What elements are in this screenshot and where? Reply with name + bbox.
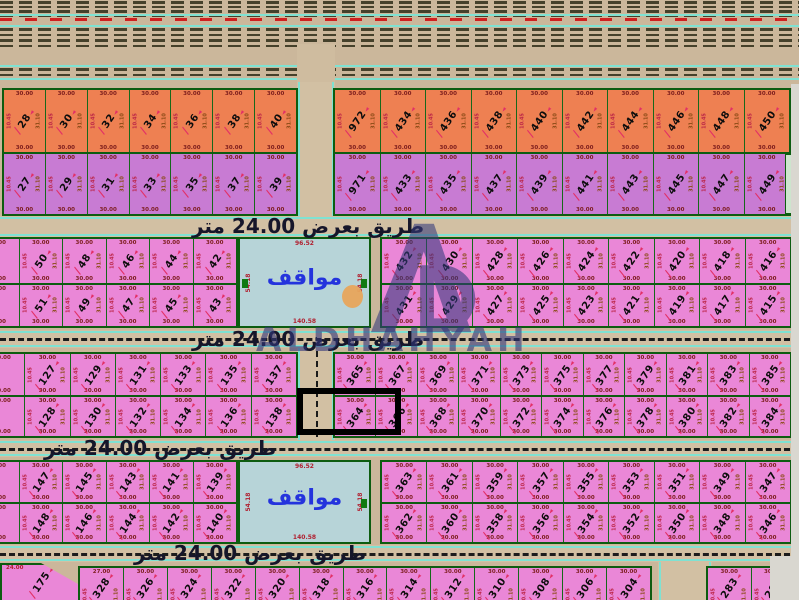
dimension-label: 10.45 [702,113,707,129]
plot-row: 30.0030.0030.0030.00/50◄10.4531.1030.003… [0,239,236,283]
plot-number: /27◄ [11,169,37,199]
plot-359[interactable]: 30.0030.00/359◄10.4531.10 [473,462,518,502]
plot-135[interactable]: 30.0030.00/135◄10.4531.10 [206,354,251,395]
plot-326[interactable]: 30.00/326◄10.4531.10 [124,568,168,600]
dimension-label: 10.45 [119,367,124,383]
plot-446[interactable]: 30.0030.00/446◄10.4531.10 [654,90,700,152]
dimension-label: 10.45 [421,409,426,425]
dimension-label: 31.10 [228,474,233,490]
plot-358[interactable]: 30.0030.00/358◄10.4531.10 [473,504,518,542]
plot-36[interactable]: 30.0030.00/36◄10.4531.10 [171,90,213,152]
plot-353[interactable]: 30.0030.00/353◄10.4531.10 [609,462,654,502]
plot-number: /424◄ [571,243,601,279]
plot-356[interactable]: 30.0030.00/356◄10.4531.10 [518,504,563,542]
dimension-label: 30.00 [745,155,790,161]
plot-number: /417◄ [707,287,737,323]
plot-block: 30.0030.00/28◄10.4531.1030.0030.00/30◄10… [2,88,298,216]
dimension-label: 10.45 [703,253,708,269]
plot-43[interactable]: 30.0030.00/43◄10.4531.10 [194,285,237,327]
dimension-label: 10.45 [657,176,662,192]
plot-971[interactable]: 30.0030.00/971◄10.4531.10 [335,154,381,214]
plot-38[interactable]: 30.0030.00/38◄10.4531.10 [213,90,255,152]
plot-373[interactable]: 30.0030.00/373◄10.4531.10 [501,354,542,395]
plot-379[interactable]: 30.0030.00/379◄10.4531.10 [625,354,666,395]
plot-row: 30.0030.00/27◄10.4531.1030.0030.00/29◄10… [4,152,296,214]
plot-439[interactable]: 30.0030.00/439◄10.4531.10 [517,154,563,214]
plot-35[interactable]: 30.0030.00/35◄10.4531.10 [171,154,213,214]
plot-354[interactable]: 30.0030.00/354◄10.4531.10 [564,504,609,542]
plot-139[interactable]: 30.0030.00/139◄10.4531.10 [194,462,237,502]
dimension-label: 30.00 [25,388,69,394]
plot-28[interactable]: 30.0030.00/28◄10.4531.10 [4,90,46,152]
dimension-label: 30.00 [564,495,608,501]
road-centerline [316,351,318,437]
dimension-label: 30.00 [501,429,541,435]
road-edge-line [0,65,799,67]
plot-364[interactable]: 30.0030.00/364◄10.4531.10 [335,397,376,436]
dimension-label: 30.00 [381,207,426,213]
dimension-label: 10.45 [421,367,426,383]
plot-row: 30.0030.0030.0030.00/127◄10.4531.1030.00… [0,354,296,395]
dimension-label: 30.00 [746,276,790,282]
dimension-label: 30.00 [20,240,63,246]
dimension-label: 31.10 [450,367,455,383]
plot-322[interactable]: 30.00/322◄10.4531.10 [212,568,256,600]
plot-number: /37◄ [221,169,247,199]
plot-44[interactable]: 30.0030.00/44◄10.4531.10 [150,239,194,283]
dimension-label: 30.00 [746,535,790,541]
dimension-label: 10.45 [522,515,527,531]
dimension-label: 31.10 [61,409,66,425]
dimension-label: 10.45 [153,253,158,269]
dimension-label: 10.45 [23,474,28,490]
plot-352[interactable]: 30.0030.00/352◄10.4531.10 [609,504,654,542]
dimension-label: 54.18 [245,493,252,512]
dimension-label: 30.00 [107,240,150,246]
dimension-label: 30.00 [475,569,518,575]
plot-365[interactable]: 30.0030.00/365◄10.4531.10 [335,354,376,395]
plot-312[interactable]: 30.00/312◄10.4531.10 [431,568,475,600]
plot-314[interactable]: 30.00/314◄10.4531.10 [387,568,431,600]
plot-33[interactable]: 30.0030.00/33◄10.4531.10 [130,154,172,214]
plot-31[interactable]: 30.0030.00/31◄10.4531.10 [88,154,130,214]
dimension-label: 31.10 [450,409,455,425]
plot-350[interactable]: 30.0030.00/350◄10.4531.10 [655,504,700,542]
plot-369[interactable]: 30.0030.00/369◄10.4531.10 [418,354,459,395]
dimension-label: 30.00 [0,388,24,394]
dimension-label: 10.45 [110,297,115,313]
road-vertical-3 [658,562,712,600]
dimension-label: 30.00 [584,429,624,435]
dimension-label: 30.00 [517,91,562,97]
plot-175[interactable]: 24.00 /175◄ [0,563,82,600]
plot-385[interactable]: 30.0030.00/385◄10.4531.10 [750,354,790,395]
dimension-label: 30.00 [518,240,562,246]
scan-edge [791,84,799,600]
dimension-label: 31.10 [491,409,496,425]
plot-972[interactable]: 30.0030.00/972◄10.4531.10 [335,90,381,152]
dimension-label: 30.00 [472,207,517,213]
dimension-label: 31.10 [782,253,787,269]
plot-132[interactable]: 30.0030.00/132◄10.4531.10 [116,397,161,436]
plot-374[interactable]: 30.0030.00/374◄10.4531.10 [542,397,583,436]
plot-147[interactable]: 30.0030.00/147◄10.4531.10 [20,462,64,502]
plot-377[interactable]: 30.0030.00/377◄10.4531.10 [584,354,625,395]
plot-449[interactable]: 30.0030.00/449◄10.4531.10 [745,154,790,214]
plot-444[interactable]: 30.0030.00/444◄10.4531.10 [608,90,654,152]
dimension-label: 31.10 [691,515,696,531]
plot-360[interactable]: 30.0030.00/360◄10.4531.10 [427,504,472,542]
dimension-label: 10.45 [658,474,663,490]
dimension-label: 10.45 [133,176,138,192]
dimension-label: 30.00 [746,319,790,325]
plot-366[interactable]: 30.0030.00/366◄10.4531.10 [376,397,417,436]
plot-375[interactable]: 30.0030.00/375◄10.4531.10 [542,354,583,395]
parking-area: 96.52 140.58 54.18 54.18 مواقف [238,460,371,544]
dimension-label: 30.00 [426,155,471,161]
dimension-label: 10.45 [49,113,54,129]
dimension-label: 30.00 [563,207,608,213]
dimension-label: 31.10 [106,367,111,383]
dimension-label: 30.00 [0,276,19,282]
dimension-label: 31.10 [736,297,741,313]
plot-row: 30.0030.00/971◄10.4531.1030.0030.00/433◄… [335,152,789,214]
plot-310[interactable]: 30.00/310◄10.4531.10 [475,568,519,600]
dimension-label: 30.00 [700,495,744,501]
dimension-label: 30.00 [150,240,193,246]
plot-316[interactable]: 30.00/316◄10.4531.10 [344,568,388,600]
plot-417[interactable]: 30.0030.00/417◄10.4531.10 [700,285,745,327]
plot-number: /448◄ [706,103,736,139]
plot-130[interactable]: 30.0030.00/130◄10.4531.10 [71,397,116,436]
plot-number: /35◄ [179,169,205,199]
dimension-label: 30.00 [194,276,237,282]
plot-361[interactable]: 30.0030.00/361◄10.4531.10 [427,462,472,502]
dimension-label: 30.00 [150,276,193,282]
plot-328[interactable]: 27.00/328◄10.4531.10 [80,568,124,600]
plot-351[interactable]: 30.0030.00/351◄10.4531.10 [655,462,700,502]
dimension-label: 30.00 [609,495,653,501]
dimension-label: 10.45 [74,367,79,383]
plot-437[interactable]: 30.0030.00/437◄10.4531.10 [472,154,518,214]
dimension-label: 31.10 [367,409,372,425]
plot-number: /442◄ [570,103,600,139]
plot-422[interactable]: 30.0030.00/422◄10.4531.10 [609,239,654,283]
plot-143[interactable]: 30.0030.00/143◄10.4531.10 [107,462,151,502]
dimension-label: 30.00 [63,319,106,325]
plot-434[interactable]: 30.0030.00/434◄10.4531.10 [381,90,427,152]
dimension-label: 31.10 [152,367,157,383]
dimension-label: 31.10 [54,474,59,490]
dimension-label: 30.00 [518,276,562,282]
dimension-label: 31.10 [408,367,413,383]
plot-447[interactable]: 30.0030.00/447◄10.4531.10 [699,154,745,214]
dimension-label: 31.10 [408,409,413,425]
plot-144[interactable]: 30.0030.00/144◄10.4531.10 [107,504,151,542]
plot-27[interactable]: 30.0030.00/27◄10.4531.10 [4,154,46,214]
plot-418[interactable]: 30.0030.00/418◄10.4531.10 [700,239,745,283]
plot-number: /436◄ [433,103,463,139]
plot-382[interactable]: 30.0030.00/382◄10.4531.10 [708,397,749,436]
dimension-label: 10.45 [703,515,708,531]
plot-row: 30.0030.0030.0030.00/148◄10.4531.1030.00… [0,502,236,542]
plot-29[interactable]: 30.0030.00/29◄10.4531.10 [46,154,88,214]
plot-355[interactable]: 30.0030.00/355◄10.4531.10 [564,462,609,502]
plot-436[interactable]: 30.0030.00/436◄10.4531.10 [426,90,472,152]
plot-283[interactable]: 30.00/283◄10.4531.10 [708,568,752,600]
plot-378[interactable]: 30.0030.00/378◄10.4531.10 [625,397,666,436]
plot-448[interactable]: 30.0030.00/448◄10.4531.10 [699,90,745,152]
watermark-text: ALDHAHYAH [256,320,530,359]
plot-146[interactable]: 30.0030.00/146◄10.4531.10 [63,504,107,542]
plot-304[interactable]: 30.00/304◄10.4531.10 [607,568,650,600]
dimension-label: 10.45 [7,113,12,129]
dimension-label: 30.00 [116,429,160,435]
dimension-label: 30.00 [130,145,171,151]
plot-424[interactable]: 30.0030.00/424◄10.4531.10 [564,239,609,283]
dimension-label: 30.00 [107,495,150,501]
dimension-label: 30.00 [745,91,790,97]
plot-number: /439◄ [524,166,554,202]
plot-145[interactable]: 30.0030.00/145◄10.4531.10 [63,462,107,502]
plot-318[interactable]: 30.00/318◄10.4531.10 [300,568,344,600]
dimension-label: 10.45 [658,253,663,269]
dimension-label: 30.00 [750,398,790,404]
dimension-label: 10.45 [197,253,202,269]
dimension-label: 30.00 [63,240,106,246]
dimension-label: 30.00 [25,429,69,435]
plot-136[interactable]: 30.0030.00/136◄10.4531.10 [206,397,251,436]
plot-421[interactable]: 30.0030.00/421◄10.4531.10 [609,285,654,327]
plot-148[interactable]: 30.0030.00/148◄10.4531.10 [20,504,64,542]
plot-row: 30.0030.0030.0030.00/147◄10.4531.1030.00… [0,462,236,502]
plot-376[interactable]: 30.0030.00/376◄10.4531.10 [584,397,625,436]
dimension-label: 30.00 [427,495,471,501]
dimension-label: 10.45 [749,253,754,269]
dimension-label: 31.10 [197,409,202,425]
plot-32[interactable]: 30.0030.00/32◄10.4531.10 [88,90,130,152]
dimension-label: 31.10 [599,113,604,129]
plot-34[interactable]: 30.0030.00/34◄10.4531.10 [130,90,172,152]
dimension-label: 10.45 [566,176,571,192]
plot-131[interactable]: 30.0030.00/131◄10.4531.10 [116,354,161,395]
dimension-label: 10.45 [431,515,436,531]
dimension-label: 10.45 [7,176,12,192]
plot-450[interactable]: 30.0030.00/450◄10.4531.10 [745,90,790,152]
dimension-label: 10.45 [391,588,396,600]
dimension-label: 31.10 [554,588,559,600]
dimension-label: 30.00 [563,145,608,151]
plot-number: /438◄ [479,103,509,139]
plot-438[interactable]: 30.0030.00/438◄10.4531.10 [472,90,518,152]
plot-46[interactable]: 30.0030.00/46◄10.4531.10 [107,239,151,283]
plot-129[interactable]: 30.0030.00/129◄10.4531.10 [71,354,116,395]
dimension-label: 30.00 [700,276,744,282]
dimension-label: 10.45 [380,409,385,425]
dimension-label: 10.45 [259,588,264,600]
plot-371[interactable]: 30.0030.00/371◄10.4531.10 [459,354,500,395]
dimension-label: 30.00 [609,319,653,325]
dimension-label: 10.45 [429,176,434,192]
plot-cell: 30.0030.00 [0,462,20,502]
plot-419[interactable]: 30.0030.00/419◄10.4531.10 [655,285,700,327]
plot-number: /43◄ [202,290,228,320]
dimension-label: 10.45 [657,113,662,129]
plot-30[interactable]: 30.0030.00/30◄10.4531.10 [46,90,88,152]
road-centerline [0,553,799,556]
dimension-label: 10.45 [259,176,264,192]
plot-370[interactable]: 30.0030.00/370◄10.4531.10 [459,397,500,436]
dimension-label: 10.45 [748,176,753,192]
dimension-label: 10.45 [91,176,96,192]
dimension-label: 31.10 [509,474,514,490]
dimension-label: 30.00 [518,535,562,541]
dimension-label: 31.10 [371,176,376,192]
plot-362[interactable]: 30.0030.00/362◄10.4531.10 [382,504,427,542]
plot-383[interactable]: 30.0030.00/383◄10.4531.10 [708,354,749,395]
plot-445[interactable]: 30.0030.00/445◄10.4531.10 [654,154,700,214]
plot-138[interactable]: 30.0030.00/138◄10.4531.10 [252,397,296,436]
dimension-label: 10.45 [210,367,215,383]
plot-346[interactable]: 30.0030.00/346◄10.4531.10 [746,504,790,542]
plot-number: /46◄ [115,246,141,276]
dimension-label: 31.10 [735,113,740,129]
dimension-label: 10.45 [567,515,572,531]
dimension-label: 31.10 [509,253,514,269]
plot-320[interactable]: 30.00/320◄10.4531.10 [256,568,300,600]
dimension-label: 31.10 [78,176,83,192]
plot-42[interactable]: 30.0030.00/42◄10.4531.10 [194,239,237,283]
dimension-label: 31.10 [645,253,650,269]
dimension-label: 10.45 [658,515,663,531]
plot-363[interactable]: 30.0030.00/363◄10.4531.10 [382,462,427,502]
plot-435[interactable]: 30.0030.00/435◄10.4531.10 [426,154,472,214]
plot-cell: 30.0030.00 [0,239,20,283]
plot-433[interactable]: 30.0030.00/433◄10.4531.10 [381,154,427,214]
dimension-label: 30.00 [130,91,171,97]
plot-423[interactable]: 30.0030.00/423◄10.4531.10 [564,285,609,327]
dimension-label: 31.10 [508,113,513,129]
plot-134[interactable]: 30.0030.00/134◄10.4531.10 [161,397,206,436]
dimension-label: 30.00 [20,276,63,282]
plot-347[interactable]: 30.0030.00/347◄10.4531.10 [746,462,790,502]
plot-cell: 30.0030.00 [0,285,20,327]
plot-48[interactable]: 30.0030.00/48◄10.4531.10 [63,239,107,283]
plot-381[interactable]: 30.0030.00/381◄10.4531.10 [667,354,708,395]
plot-40[interactable]: 30.0030.00/40◄10.4531.10 [255,90,296,152]
plot-51[interactable]: 30.0030.00/51◄10.4531.10 [20,285,64,327]
dimension-label: 31.10 [463,515,468,531]
dimension-label: 31.10 [334,588,339,600]
plot-440[interactable]: 30.0030.00/440◄10.4531.10 [517,90,563,152]
plot-39[interactable]: 30.0030.00/39◄10.4531.10 [255,154,296,214]
road-edge-line [0,546,799,548]
dimension-label: 30.00 [418,429,458,435]
dimension-label: 30.00 [750,388,790,394]
plot-128[interactable]: 30.0030.00/128◄10.4531.10 [25,397,70,436]
plot-127[interactable]: 30.0030.00/127◄10.4531.10 [25,354,70,395]
dimension-label: 30.00 [699,145,744,151]
dimension-label: 10.45 [165,367,170,383]
plot-number: /971◄ [342,166,372,202]
plot-50[interactable]: 30.0030.00/50◄10.4531.10 [20,239,64,283]
dimension-label: 30.00 [517,155,562,161]
plot-384[interactable]: 30.0030.00/384◄10.4531.10 [750,397,790,436]
plot-372[interactable]: 30.0030.00/372◄10.4531.10 [501,397,542,436]
dimension-label: 30.00 [426,207,471,213]
plot-416[interactable]: 30.0030.00/416◄10.4531.10 [746,239,790,283]
plot-306[interactable]: 30.00/306◄10.4531.10 [563,568,607,600]
plot-367[interactable]: 30.0030.00/367◄10.4531.10 [376,354,417,395]
dimension-label: 31.10 [616,409,621,425]
dimension-label: 30.00 [564,286,608,292]
plot-number: /28◄ [11,106,37,136]
dimension-label: 30.00 [517,145,562,151]
dimension-label: 24.00 [6,565,23,571]
dimension-label: 10.45 [165,409,170,425]
plot-142[interactable]: 30.0030.00/142◄10.4531.10 [150,504,194,542]
plot-49[interactable]: 30.0030.00/49◄10.4531.10 [63,285,107,327]
dimension-label: 30.00 [427,463,471,469]
dimension-label: 10.45 [66,515,71,531]
plot-37[interactable]: 30.0030.00/37◄10.4531.10 [213,154,255,214]
plot-number: /34◄ [137,106,163,136]
plot-442[interactable]: 30.0030.00/442◄10.4531.10 [563,90,609,152]
plot-137[interactable]: 30.0030.00/137◄10.4531.10 [252,354,296,395]
plot-141[interactable]: 30.0030.00/141◄10.4531.10 [150,462,194,502]
plot-368[interactable]: 30.0030.00/368◄10.4531.10 [418,397,459,436]
plot-140[interactable]: 30.0030.00/140◄10.4531.10 [194,504,237,542]
dimension-label: 10.45 [748,113,753,129]
plot-348[interactable]: 30.0030.00/348◄10.4531.10 [700,504,745,542]
plot-number: /440◄ [524,103,554,139]
plot-47[interactable]: 30.0030.00/47◄10.4531.10 [107,285,151,327]
dimension-label: 30.00 [252,388,296,394]
dimension-label: 30.00 [667,398,707,404]
dimension-label: 30.00 [130,155,171,161]
dimension-label: 10.45 [475,113,480,129]
dimension-label: 30.00 [563,569,606,575]
dimension-label: 10.45 [546,409,551,425]
road-width-label: طريق بعرض 24.00 متر [134,541,366,565]
parking-area: 96.52 140.58 54.18 54.18 مواقف [238,237,371,328]
plot-349[interactable]: 30.0030.00/349◄10.4531.10 [700,462,745,502]
dimension-label: 30.00 [88,145,129,151]
plot-380[interactable]: 30.0030.00/380◄10.4531.10 [667,397,708,436]
dimension-label: 30.00 [335,388,375,394]
plot-426[interactable]: 30.0030.00/426◄10.4531.10 [518,239,563,283]
plot-cell: 30.0030.00 [0,354,25,395]
dimension-label: 30.00 [255,91,296,97]
dimension-label: 30.00 [0,319,19,325]
dimension-label: 31.10 [61,367,66,383]
plot-row: 30.0030.0030.0030.00/51◄10.4531.1030.003… [0,283,236,327]
plot-443[interactable]: 30.0030.00/443◄10.4531.10 [608,154,654,214]
plot-415[interactable]: 30.0030.00/415◄10.4531.10 [746,285,790,327]
highway-hatch-row [0,39,799,42]
plot-row: 30.0030.00/28◄10.4531.1030.0030.00/30◄10… [4,90,296,152]
dimension-label: 30.00 [746,286,790,292]
plot-324[interactable]: 30.00/324◄10.4531.10 [168,568,212,600]
plot-420[interactable]: 30.0030.00/420◄10.4531.10 [655,239,700,283]
plot-441[interactable]: 30.0030.00/441◄10.4531.10 [563,154,609,214]
plot-45[interactable]: 30.0030.00/45◄10.4531.10 [150,285,194,327]
plot-number: /447◄ [706,166,736,202]
plot-133[interactable]: 30.0030.00/133◄10.4531.10 [161,354,206,395]
dimension-label: 31.10 [417,176,422,192]
plot-357[interactable]: 30.0030.00/357◄10.4531.10 [518,462,563,502]
plot-308[interactable]: 30.00/308◄10.4531.10 [519,568,563,600]
